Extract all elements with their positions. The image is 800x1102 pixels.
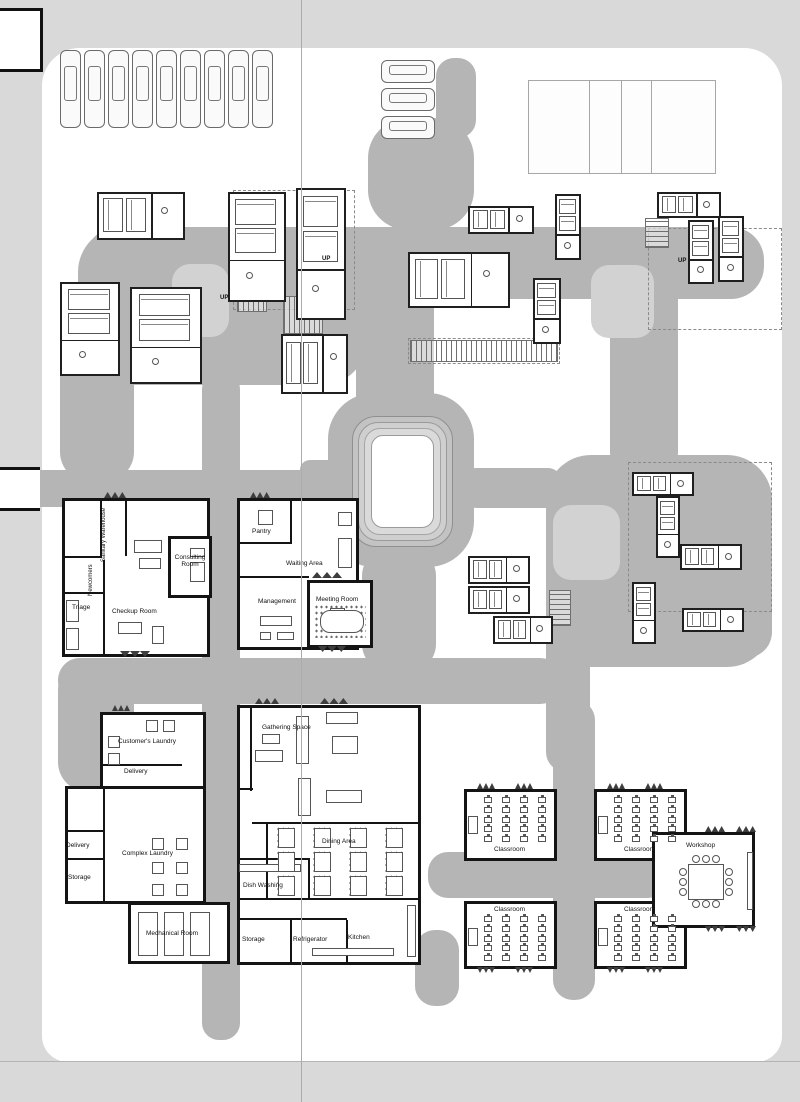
student-desk <box>614 836 622 842</box>
dining-table <box>386 852 403 872</box>
car <box>381 88 435 111</box>
bed <box>473 210 488 228</box>
dining-table <box>386 828 403 848</box>
student-desk <box>484 945 492 951</box>
student-desk <box>614 797 622 803</box>
bath-wall <box>230 260 284 262</box>
furniture-item <box>312 948 394 956</box>
furniture-item <box>326 712 358 724</box>
student-desk <box>632 817 640 823</box>
student-desk <box>668 826 676 832</box>
room-label-classroom: Classroom <box>624 846 655 853</box>
bed <box>415 259 439 299</box>
room-label-sanitary-warehouse: Sanitary Warehouse <box>101 506 108 562</box>
student-desk <box>650 797 658 803</box>
dorm-unit <box>60 282 120 376</box>
bed <box>126 198 146 231</box>
student-desk <box>484 926 492 932</box>
bath-wall <box>720 610 722 630</box>
student-desk <box>502 797 510 803</box>
dorm-unit <box>533 278 561 344</box>
up-label: UP <box>220 295 228 302</box>
furniture-item <box>108 753 120 765</box>
dorm-unit <box>657 192 721 218</box>
room-label-delivery: Delivery <box>66 842 89 849</box>
student-desk <box>520 926 528 932</box>
dorm-unit <box>468 586 530 614</box>
bath-wall <box>670 474 672 494</box>
bath-wall <box>690 259 712 261</box>
bath-wall <box>634 620 654 622</box>
door-canopy <box>607 967 625 973</box>
court-divider <box>589 81 590 173</box>
bed <box>678 196 692 213</box>
car <box>84 50 105 128</box>
student-desk <box>668 817 676 823</box>
bed <box>489 560 503 578</box>
dining-table <box>278 828 295 848</box>
furniture-item <box>152 862 164 874</box>
student-desk <box>614 826 622 832</box>
student-desk <box>632 807 640 813</box>
room-label-pantry: Pantry <box>252 528 271 535</box>
student-desk <box>614 817 622 823</box>
furniture-item <box>176 862 188 874</box>
student-desk <box>614 936 622 942</box>
bed <box>722 221 739 236</box>
student-desk <box>614 955 622 961</box>
bath-wall <box>696 194 698 216</box>
toilet <box>725 553 732 560</box>
car <box>156 50 177 128</box>
dorm-unit <box>656 496 680 558</box>
student-desk <box>484 797 492 803</box>
student-desk <box>632 955 640 961</box>
student-desk <box>520 916 528 922</box>
door-canopy <box>477 967 495 973</box>
furniture-item <box>747 852 753 910</box>
dining-table <box>314 876 331 896</box>
classroom-3-desks <box>484 916 550 962</box>
dining-table <box>386 876 403 896</box>
student-desk <box>668 807 676 813</box>
dorm-unit <box>718 216 744 282</box>
student-desk <box>650 955 658 961</box>
walkway <box>415 930 459 1006</box>
dorm-unit <box>688 220 714 284</box>
student-desk <box>650 945 658 951</box>
door-canopy <box>607 783 625 789</box>
walkway <box>553 700 595 1000</box>
room-label-classroom: Classroom <box>624 906 655 913</box>
furniture-item <box>468 816 478 834</box>
bed <box>498 620 511 638</box>
student-desk <box>632 926 640 932</box>
door-canopy <box>120 651 150 657</box>
toilet <box>246 272 253 279</box>
bed <box>701 548 715 565</box>
dining-table <box>278 852 295 872</box>
room-label-classroom: Classroom <box>494 846 525 853</box>
student-desk <box>538 926 546 932</box>
student-desk <box>484 817 492 823</box>
furniture-item <box>598 928 608 946</box>
student-desk <box>614 916 622 922</box>
courtyard-3 <box>553 505 620 580</box>
toilet <box>312 285 319 292</box>
room-label-waiting-area: Waiting Area <box>286 560 323 567</box>
door-canopy <box>515 783 533 789</box>
student-desk <box>520 826 528 832</box>
door-canopy <box>705 926 725 932</box>
car <box>132 50 153 128</box>
toilet <box>516 215 523 222</box>
toilet <box>536 625 543 632</box>
toilet <box>79 351 86 358</box>
toilet <box>330 353 337 360</box>
student-desk <box>668 926 676 932</box>
room-label-customers-laundry: Customer's Laundry <box>118 738 176 745</box>
room-label-checkup-room: Checkup Room <box>112 608 157 615</box>
bath-wall <box>508 208 510 232</box>
student-desk <box>538 936 546 942</box>
student-desk <box>520 807 528 813</box>
bed <box>68 289 111 311</box>
dining-table <box>350 852 367 872</box>
workshop-chair <box>679 878 687 886</box>
student-desk <box>538 945 546 951</box>
dorm-unit <box>228 192 286 302</box>
sheet-bottom-edge <box>0 1061 800 1062</box>
bed <box>513 620 526 638</box>
student-desk <box>484 936 492 942</box>
bed <box>636 603 651 617</box>
student-desk <box>520 797 528 803</box>
door-canopy <box>318 646 346 652</box>
student-desk <box>650 836 658 842</box>
dorm-unit <box>97 192 185 240</box>
student-desk <box>502 936 510 942</box>
furniture-item <box>468 928 478 946</box>
bath-wall <box>151 194 153 238</box>
furniture-item <box>163 720 175 732</box>
car <box>204 50 225 128</box>
dining-table <box>314 852 331 872</box>
car <box>252 50 273 128</box>
room-label-gathering-space: Gathering Space <box>262 724 311 731</box>
student-desk <box>650 826 658 832</box>
bed <box>559 199 576 214</box>
room-label-dish-washing: Dish Washing <box>243 882 283 889</box>
bed <box>303 342 318 385</box>
room-label-management: Management <box>258 598 296 605</box>
bed <box>692 241 709 255</box>
classroom-2-desks <box>614 797 680 843</box>
student-desk <box>614 945 622 951</box>
furniture-item <box>260 632 271 640</box>
bed <box>703 612 717 627</box>
student-desk <box>632 936 640 942</box>
workshop-chair <box>725 868 733 876</box>
car <box>381 116 435 139</box>
student-desk <box>502 807 510 813</box>
callout-box-top-left <box>0 8 43 72</box>
toilet <box>677 480 684 487</box>
furniture-item <box>255 750 283 762</box>
classroom-1-desks <box>484 797 550 843</box>
dorm-unit <box>632 472 694 496</box>
bed <box>473 560 487 578</box>
furniture-item <box>146 720 158 732</box>
bed <box>692 225 709 239</box>
dorm-unit <box>130 287 202 384</box>
toilet <box>161 207 168 214</box>
bed <box>685 548 699 565</box>
court-divider <box>621 81 622 173</box>
room-label-storage: Storage <box>242 936 265 943</box>
dining-table <box>350 876 367 896</box>
student-desk <box>484 916 492 922</box>
dorm-unit <box>408 252 510 308</box>
bath-wall <box>658 534 678 536</box>
student-desk <box>650 807 658 813</box>
bed <box>687 612 701 627</box>
student-desk <box>484 955 492 961</box>
workshop-chair <box>679 888 687 896</box>
classroom-4-desks <box>614 916 680 962</box>
toilet <box>640 627 647 634</box>
dorm-unit <box>682 608 744 632</box>
furniture-item <box>118 622 142 634</box>
workshop-chair <box>725 878 733 886</box>
room-label-refrigerator: Refrigerator <box>293 936 327 943</box>
door-canopy <box>112 705 130 711</box>
furniture-item <box>338 512 352 526</box>
room-label-meeting-room: Meeting Room <box>316 596 358 603</box>
bed <box>139 294 191 316</box>
furniture-item <box>152 838 164 850</box>
student-desk <box>502 826 510 832</box>
door-canopy <box>104 492 126 498</box>
bed <box>103 198 123 231</box>
fold-line <box>301 0 302 1102</box>
student-desk <box>502 836 510 842</box>
bath-wall <box>718 546 720 568</box>
furniture-item <box>298 778 311 816</box>
door-canopy <box>477 783 495 789</box>
student-desk <box>668 836 676 842</box>
student-desk <box>502 926 510 932</box>
bed <box>303 231 338 262</box>
student-desk <box>668 797 676 803</box>
room-label-delivery: Delivery <box>124 768 147 775</box>
entrance-box-left <box>0 467 40 511</box>
student-desk <box>668 916 676 922</box>
bath-wall <box>471 254 473 306</box>
bed <box>662 196 676 213</box>
site-plan: UP UP UP Sanitary Warehouse Newcomers Tr… <box>0 0 800 1102</box>
furniture-item <box>598 816 608 834</box>
student-desk <box>538 955 546 961</box>
workshop-chair <box>679 868 687 876</box>
dorm-unit <box>281 334 348 394</box>
student-desk <box>632 797 640 803</box>
student-desk <box>520 836 528 842</box>
bed <box>653 476 667 491</box>
bath-wall <box>535 318 559 320</box>
bed <box>722 238 739 253</box>
toilet <box>483 270 490 277</box>
furniture-item <box>152 626 164 644</box>
student-desk <box>502 817 510 823</box>
furniture-item <box>326 790 362 803</box>
furniture-item <box>407 905 416 957</box>
car <box>180 50 201 128</box>
student-desk <box>520 936 528 942</box>
bed <box>473 590 487 608</box>
furniture-item <box>134 540 162 553</box>
bath-wall <box>506 558 508 582</box>
student-desk <box>650 936 658 942</box>
toilet <box>152 358 159 365</box>
student-desk <box>650 926 658 932</box>
workshop-table <box>688 864 724 900</box>
furniture-item <box>260 616 292 626</box>
door-canopy <box>705 826 725 832</box>
workshop-chair <box>692 855 700 863</box>
bed <box>286 342 301 385</box>
bath-wall <box>506 588 508 612</box>
bed <box>660 517 675 531</box>
bed <box>441 259 465 299</box>
door-canopy <box>255 698 279 704</box>
student-desk <box>520 945 528 951</box>
toilet <box>513 595 520 602</box>
door-canopy <box>320 698 348 704</box>
student-desk <box>632 945 640 951</box>
dorm-unit <box>296 188 346 320</box>
furniture-item <box>139 558 161 569</box>
dorm-unit <box>680 544 742 570</box>
bed <box>303 196 338 227</box>
stair <box>645 218 669 248</box>
door-canopy <box>736 826 756 832</box>
student-desk <box>668 945 676 951</box>
student-desk <box>632 916 640 922</box>
toilet <box>513 565 520 572</box>
bed <box>637 476 651 491</box>
room-label-kitchen: Kitchen <box>348 934 370 941</box>
car <box>381 60 435 83</box>
up-label: UP <box>678 258 686 265</box>
furniture-item <box>338 538 352 568</box>
meeting-table <box>320 610 364 633</box>
room-label-dining-area: Dining Area <box>322 838 356 845</box>
student-desk <box>538 836 546 842</box>
bed <box>139 319 191 341</box>
bed <box>489 590 503 608</box>
bed <box>559 216 576 231</box>
student-desk <box>668 955 676 961</box>
bed <box>68 313 111 335</box>
door-canopy <box>645 783 663 789</box>
student-desk <box>484 826 492 832</box>
dorm-unit <box>555 194 581 260</box>
bath-wall <box>720 256 742 258</box>
student-desk <box>520 955 528 961</box>
dorm-unit <box>468 206 534 234</box>
room-label-workshop: Workshop <box>686 842 715 849</box>
furniture-item <box>176 884 188 896</box>
bed <box>235 199 276 224</box>
door-canopy <box>515 967 533 973</box>
furniture-item <box>66 628 79 650</box>
room-label-consulting-room: Consulting Room <box>170 554 210 569</box>
student-desk <box>538 807 546 813</box>
workshop-chair <box>712 855 720 863</box>
toilet <box>664 541 671 548</box>
bath-wall <box>530 618 532 642</box>
bed <box>537 283 555 298</box>
door-canopy <box>312 572 342 578</box>
student-desk <box>538 817 546 823</box>
student-desk <box>632 836 640 842</box>
bath-wall <box>62 340 118 342</box>
student-desk <box>484 807 492 813</box>
room-label-classroom: Classroom <box>494 906 525 913</box>
student-desk <box>650 817 658 823</box>
student-desk <box>614 926 622 932</box>
dorm-unit <box>493 616 553 644</box>
student-desk <box>668 936 676 942</box>
workshop-chair <box>712 900 720 908</box>
student-desk <box>502 955 510 961</box>
toilet <box>703 201 710 208</box>
bath-wall <box>132 347 200 349</box>
student-desk <box>538 916 546 922</box>
door-canopy <box>250 492 270 498</box>
bath-wall <box>557 234 579 236</box>
bed <box>490 210 505 228</box>
toilet <box>727 264 734 271</box>
room-label-mechanical-room: Mechanical Room <box>146 930 198 937</box>
toilet <box>727 616 734 623</box>
dorm-unit <box>632 582 656 644</box>
student-desk <box>484 836 492 842</box>
room-label-storage: Storage <box>68 874 91 881</box>
student-desk <box>502 945 510 951</box>
furniture-item <box>332 736 358 754</box>
bed <box>636 587 651 601</box>
workshop-chair <box>725 888 733 896</box>
workshop-chair <box>702 900 710 908</box>
bed <box>660 501 675 515</box>
furniture-item <box>277 632 294 640</box>
furniture-item <box>152 884 164 896</box>
dorm-unit <box>468 556 530 584</box>
toilet <box>564 242 571 249</box>
door-canopy <box>645 967 663 973</box>
court-divider <box>651 81 652 173</box>
furniture-item <box>176 838 188 850</box>
room-label-complex-laundry: Complex Laundry <box>122 850 173 857</box>
room-label-newcomers: Newcomers <box>88 548 95 596</box>
student-desk <box>538 826 546 832</box>
bed <box>235 228 276 253</box>
toilet <box>697 266 704 273</box>
sports-court <box>528 80 716 174</box>
door-canopy <box>736 926 756 932</box>
